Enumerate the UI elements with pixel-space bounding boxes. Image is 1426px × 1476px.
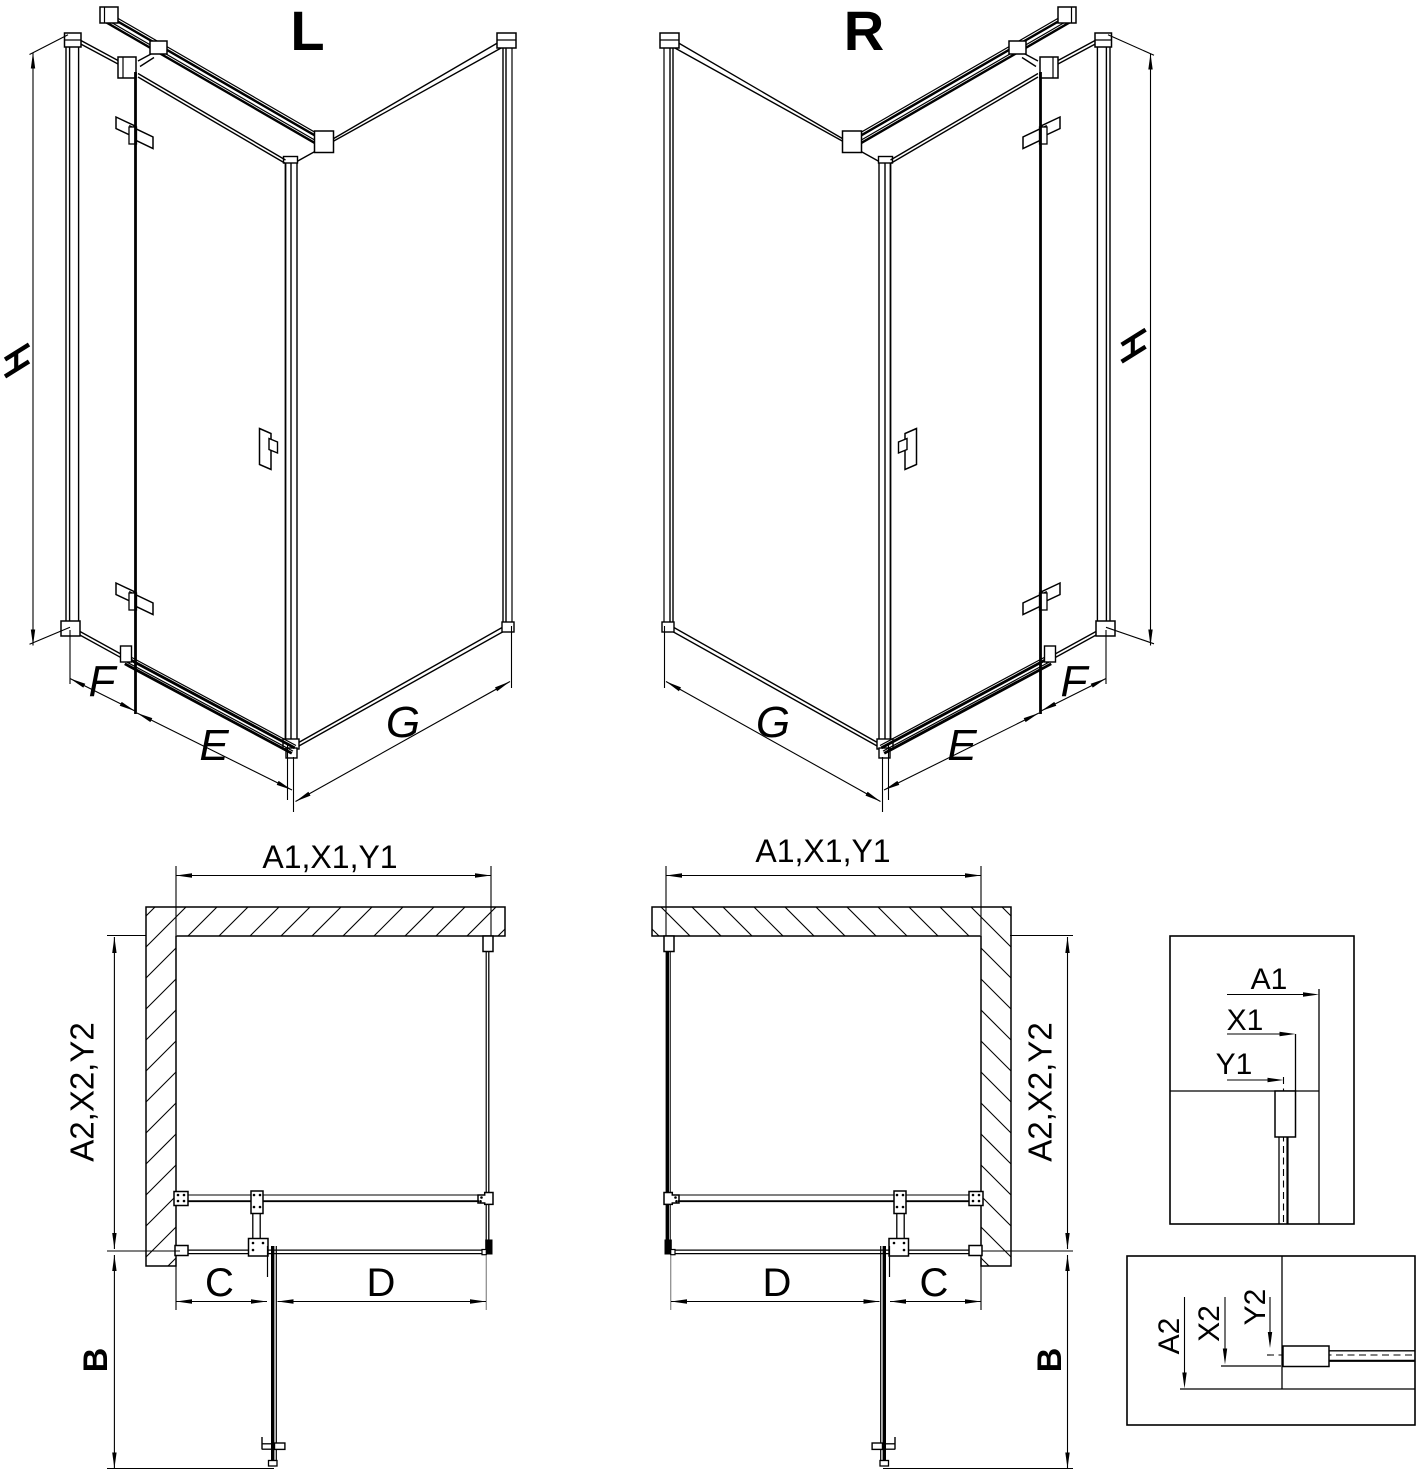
svg-text:E: E	[947, 721, 977, 770]
svg-text:E: E	[199, 721, 229, 770]
svg-text:A2,X2,Y2: A2,X2,Y2	[1022, 1022, 1059, 1161]
svg-text:A1,X1,Y1: A1,X1,Y1	[755, 833, 890, 869]
svg-text:Y1: Y1	[1216, 1048, 1253, 1081]
svg-text:A1: A1	[1251, 963, 1288, 996]
svg-text:G: G	[386, 698, 420, 747]
svg-text:C: C	[920, 1261, 949, 1305]
svg-text:G: G	[756, 698, 790, 747]
svg-text:F: F	[1061, 657, 1090, 706]
svg-text:Y2: Y2	[1239, 1289, 1272, 1326]
svg-text:R: R	[844, 0, 884, 62]
svg-text:X1: X1	[1227, 1004, 1264, 1037]
svg-text:D: D	[367, 1261, 396, 1305]
svg-text:A1,X1,Y1: A1,X1,Y1	[262, 839, 397, 875]
svg-text:F: F	[89, 657, 118, 706]
svg-text:C: C	[205, 1261, 234, 1305]
svg-text:A2: A2	[1153, 1318, 1186, 1355]
svg-text:L: L	[290, 0, 324, 62]
svg-text:X2: X2	[1193, 1305, 1226, 1342]
svg-text:D: D	[763, 1261, 792, 1305]
svg-text:B: B	[77, 1348, 115, 1373]
svg-text:A2,X2,Y2: A2,X2,Y2	[64, 1022, 101, 1161]
svg-text:B: B	[1031, 1348, 1069, 1373]
